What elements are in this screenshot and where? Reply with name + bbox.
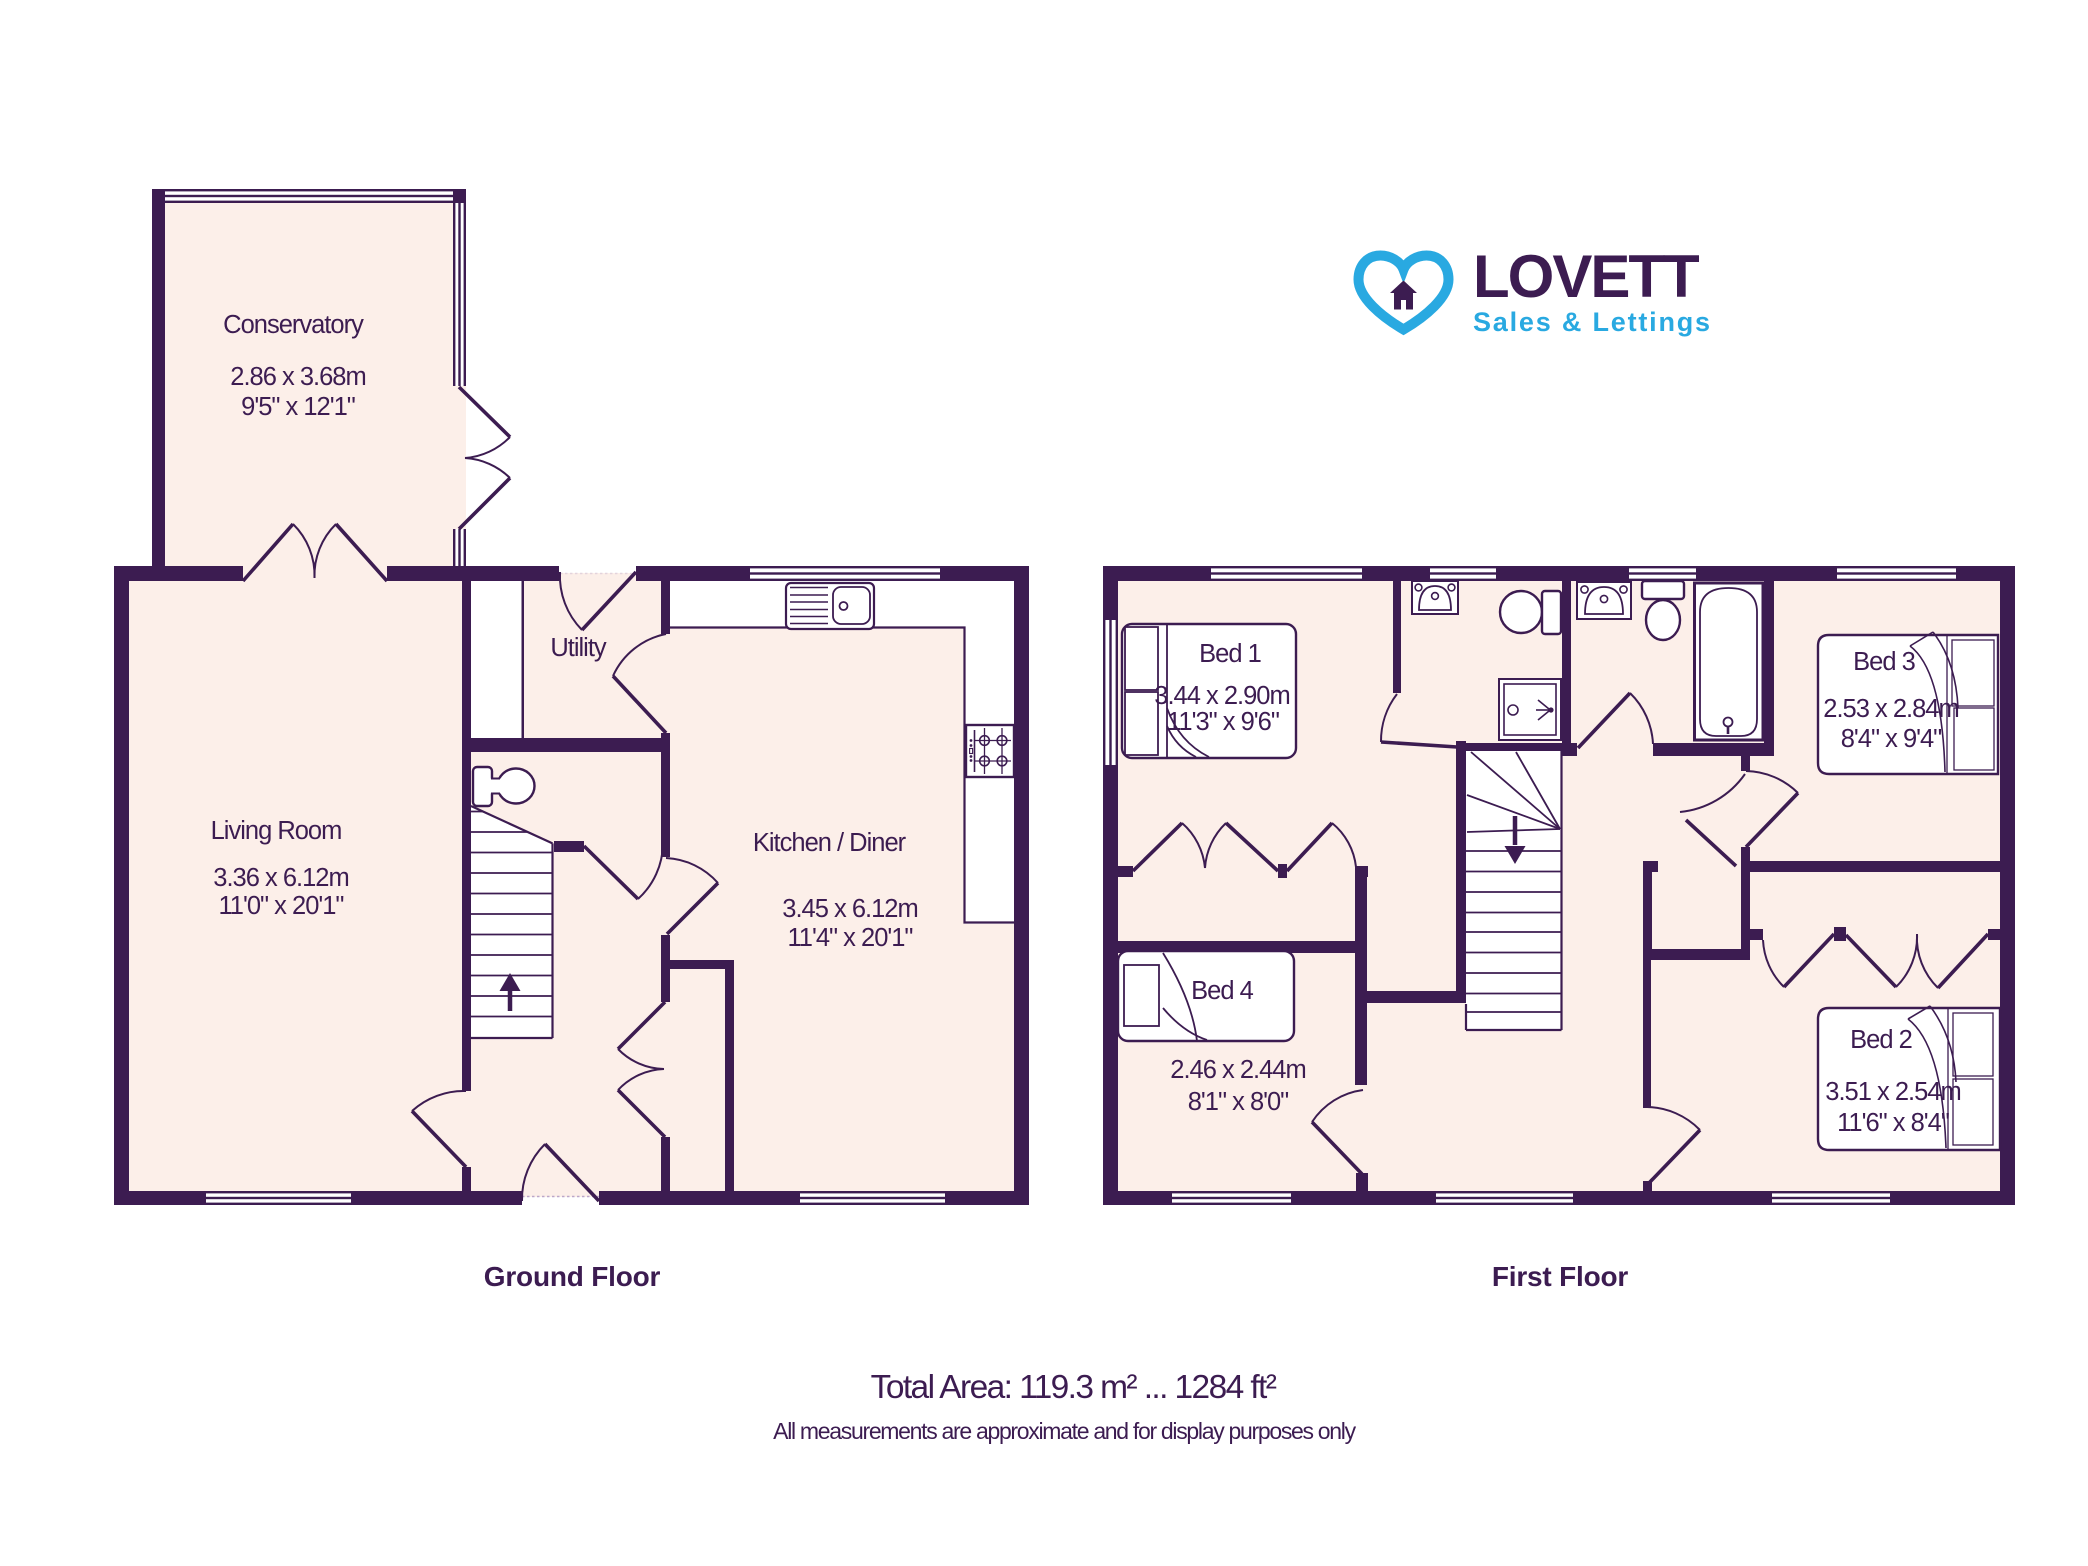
svg-text:3.36 x 6.12m: 3.36 x 6.12m bbox=[213, 864, 348, 892]
svg-text:8'1" x 8'0": 8'1" x 8'0" bbox=[1188, 1088, 1289, 1116]
svg-text:Bed 4: Bed 4 bbox=[1191, 977, 1253, 1005]
svg-text:9'5" x 12'1": 9'5" x 12'1" bbox=[241, 393, 355, 421]
svg-text:Bed 1: Bed 1 bbox=[1199, 640, 1261, 668]
svg-text:Kitchen / Diner: Kitchen / Diner bbox=[753, 829, 907, 857]
svg-text:LOVETT: LOVETT bbox=[1473, 243, 1699, 310]
svg-text:Bed 3: Bed 3 bbox=[1853, 648, 1915, 676]
svg-text:2.86 x 3.68m: 2.86 x 3.68m bbox=[230, 363, 365, 391]
svg-text:11'3" x 9'6": 11'3" x 9'6" bbox=[1167, 708, 1279, 736]
svg-text:Conservatory: Conservatory bbox=[223, 311, 364, 339]
svg-text:2.53 x 2.84m: 2.53 x 2.84m bbox=[1823, 695, 1958, 723]
svg-text:3.51 x 2.54m: 3.51 x 2.54m bbox=[1825, 1078, 1960, 1106]
svg-text:3.44 x 2.90m: 3.44 x 2.90m bbox=[1154, 682, 1289, 710]
svg-text:2.46 x 2.44m: 2.46 x 2.44m bbox=[1170, 1056, 1305, 1084]
svg-text:3.45 x 6.12m: 3.45 x 6.12m bbox=[782, 895, 917, 923]
svg-text:Living Room: Living Room bbox=[211, 817, 342, 845]
svg-text:Utility: Utility bbox=[550, 634, 607, 662]
svg-text:11'4" x 20'1": 11'4" x 20'1" bbox=[788, 924, 913, 952]
svg-text:11'6" x 8'4": 11'6" x 8'4" bbox=[1837, 1109, 1949, 1137]
svg-text:Ground Floor: Ground Floor bbox=[484, 1261, 661, 1292]
svg-text:Total Area: 119.3 m² ... 1284: Total Area: 119.3 m² ... 1284 ft² bbox=[871, 1369, 1277, 1406]
svg-text:Sales & Lettings: Sales & Lettings bbox=[1473, 307, 1712, 337]
svg-text:All measurements are approxima: All measurements are approximate and for… bbox=[773, 1418, 1356, 1444]
svg-text:First Floor: First Floor bbox=[1492, 1261, 1629, 1292]
svg-text:Bed 2: Bed 2 bbox=[1850, 1026, 1912, 1054]
svg-text:11'0" x 20'1": 11'0" x 20'1" bbox=[219, 892, 344, 920]
svg-text:8'4" x 9'4": 8'4" x 9'4" bbox=[1841, 725, 1942, 753]
